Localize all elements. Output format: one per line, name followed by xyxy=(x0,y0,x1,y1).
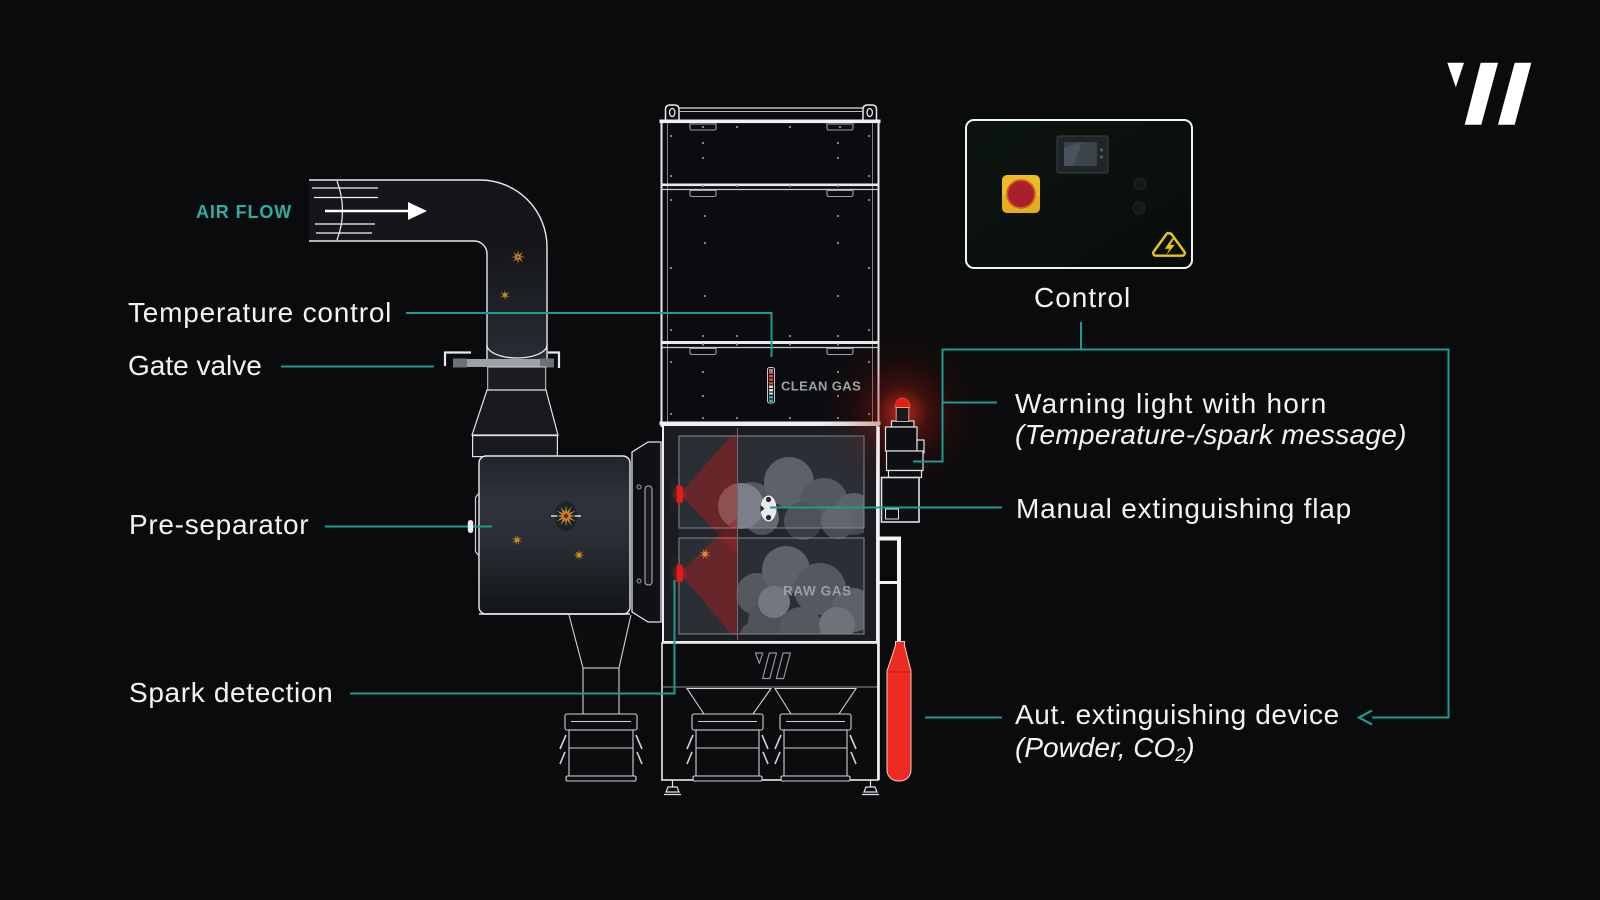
svg-text:Spark detection: Spark detection xyxy=(129,677,333,708)
svg-text:RAW GAS: RAW GAS xyxy=(783,584,852,599)
svg-text:Aut. extinguishing device: Aut. extinguishing device xyxy=(1015,699,1340,730)
svg-text:Gate valve: Gate valve xyxy=(128,350,262,381)
svg-text:Control: Control xyxy=(1034,282,1131,313)
svg-text:(Powder, CO2): (Powder, CO2) xyxy=(1015,732,1195,765)
svg-text:Pre-separator: Pre-separator xyxy=(129,509,309,540)
svg-text:CLEAN GAS: CLEAN GAS xyxy=(781,379,861,394)
svg-text:AIR FLOW: AIR FLOW xyxy=(196,202,292,222)
svg-text:Temperature control: Temperature control xyxy=(128,297,392,328)
svg-text:Warning light with horn: Warning light with horn xyxy=(1015,388,1328,419)
svg-text:(Temperature-/spark message): (Temperature-/spark message) xyxy=(1015,419,1407,450)
svg-text:Manual extinguishing flap: Manual extinguishing flap xyxy=(1016,493,1352,524)
